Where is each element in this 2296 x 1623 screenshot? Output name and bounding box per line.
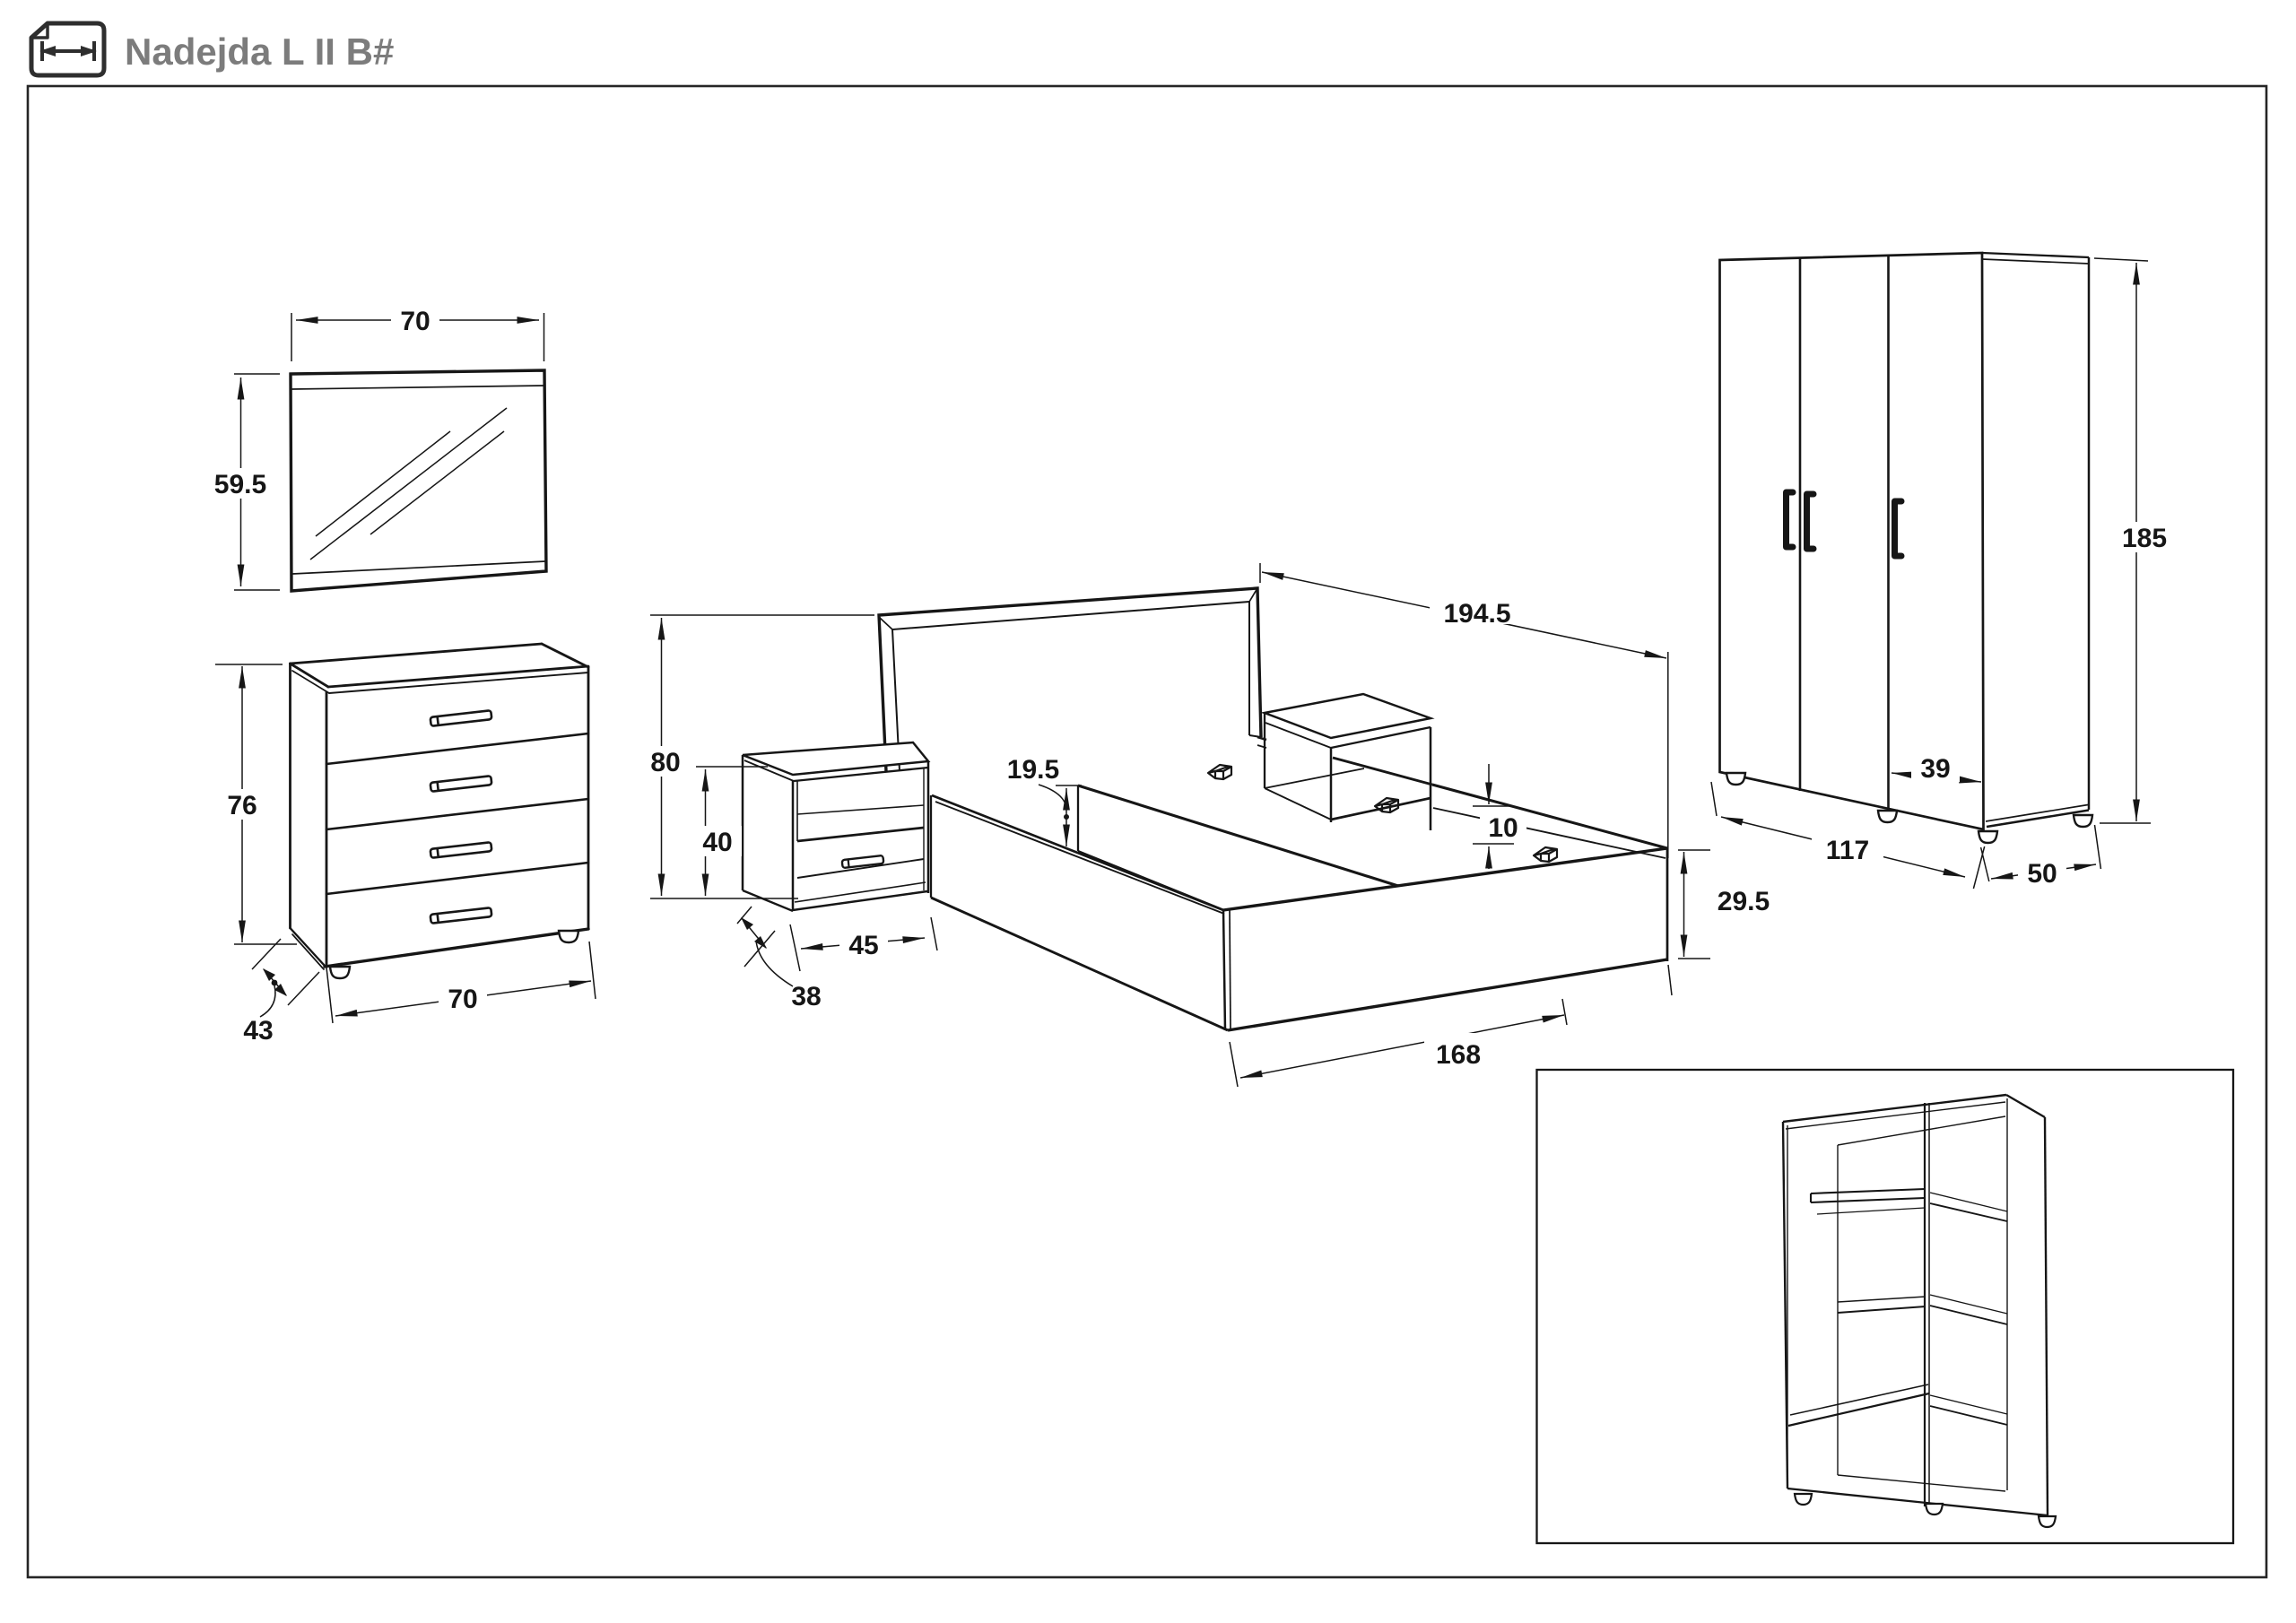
svg-text:29.5: 29.5 — [1718, 887, 1770, 916]
svg-text:39: 39 — [1920, 754, 1950, 784]
svg-text:59.5: 59.5 — [214, 470, 266, 499]
svg-text:10: 10 — [1488, 813, 1518, 843]
svg-text:194.5: 194.5 — [1443, 599, 1510, 629]
svg-text:168: 168 — [1436, 1040, 1481, 1070]
svg-text:185: 185 — [2122, 524, 2167, 553]
svg-text:40: 40 — [702, 828, 732, 857]
svg-text:45: 45 — [848, 931, 878, 960]
svg-text:38: 38 — [791, 982, 821, 1011]
svg-text:76: 76 — [227, 791, 257, 820]
svg-text:70: 70 — [448, 985, 477, 1014]
svg-text:70: 70 — [400, 307, 430, 336]
svg-text:43: 43 — [243, 1016, 273, 1046]
svg-text:50: 50 — [2027, 859, 2057, 889]
svg-text:Nadejda L II B#: Nadejda L II B# — [125, 30, 394, 73]
svg-text:19.5: 19.5 — [1007, 755, 1059, 785]
svg-text:80: 80 — [650, 748, 680, 777]
svg-text:117: 117 — [1826, 836, 1869, 865]
